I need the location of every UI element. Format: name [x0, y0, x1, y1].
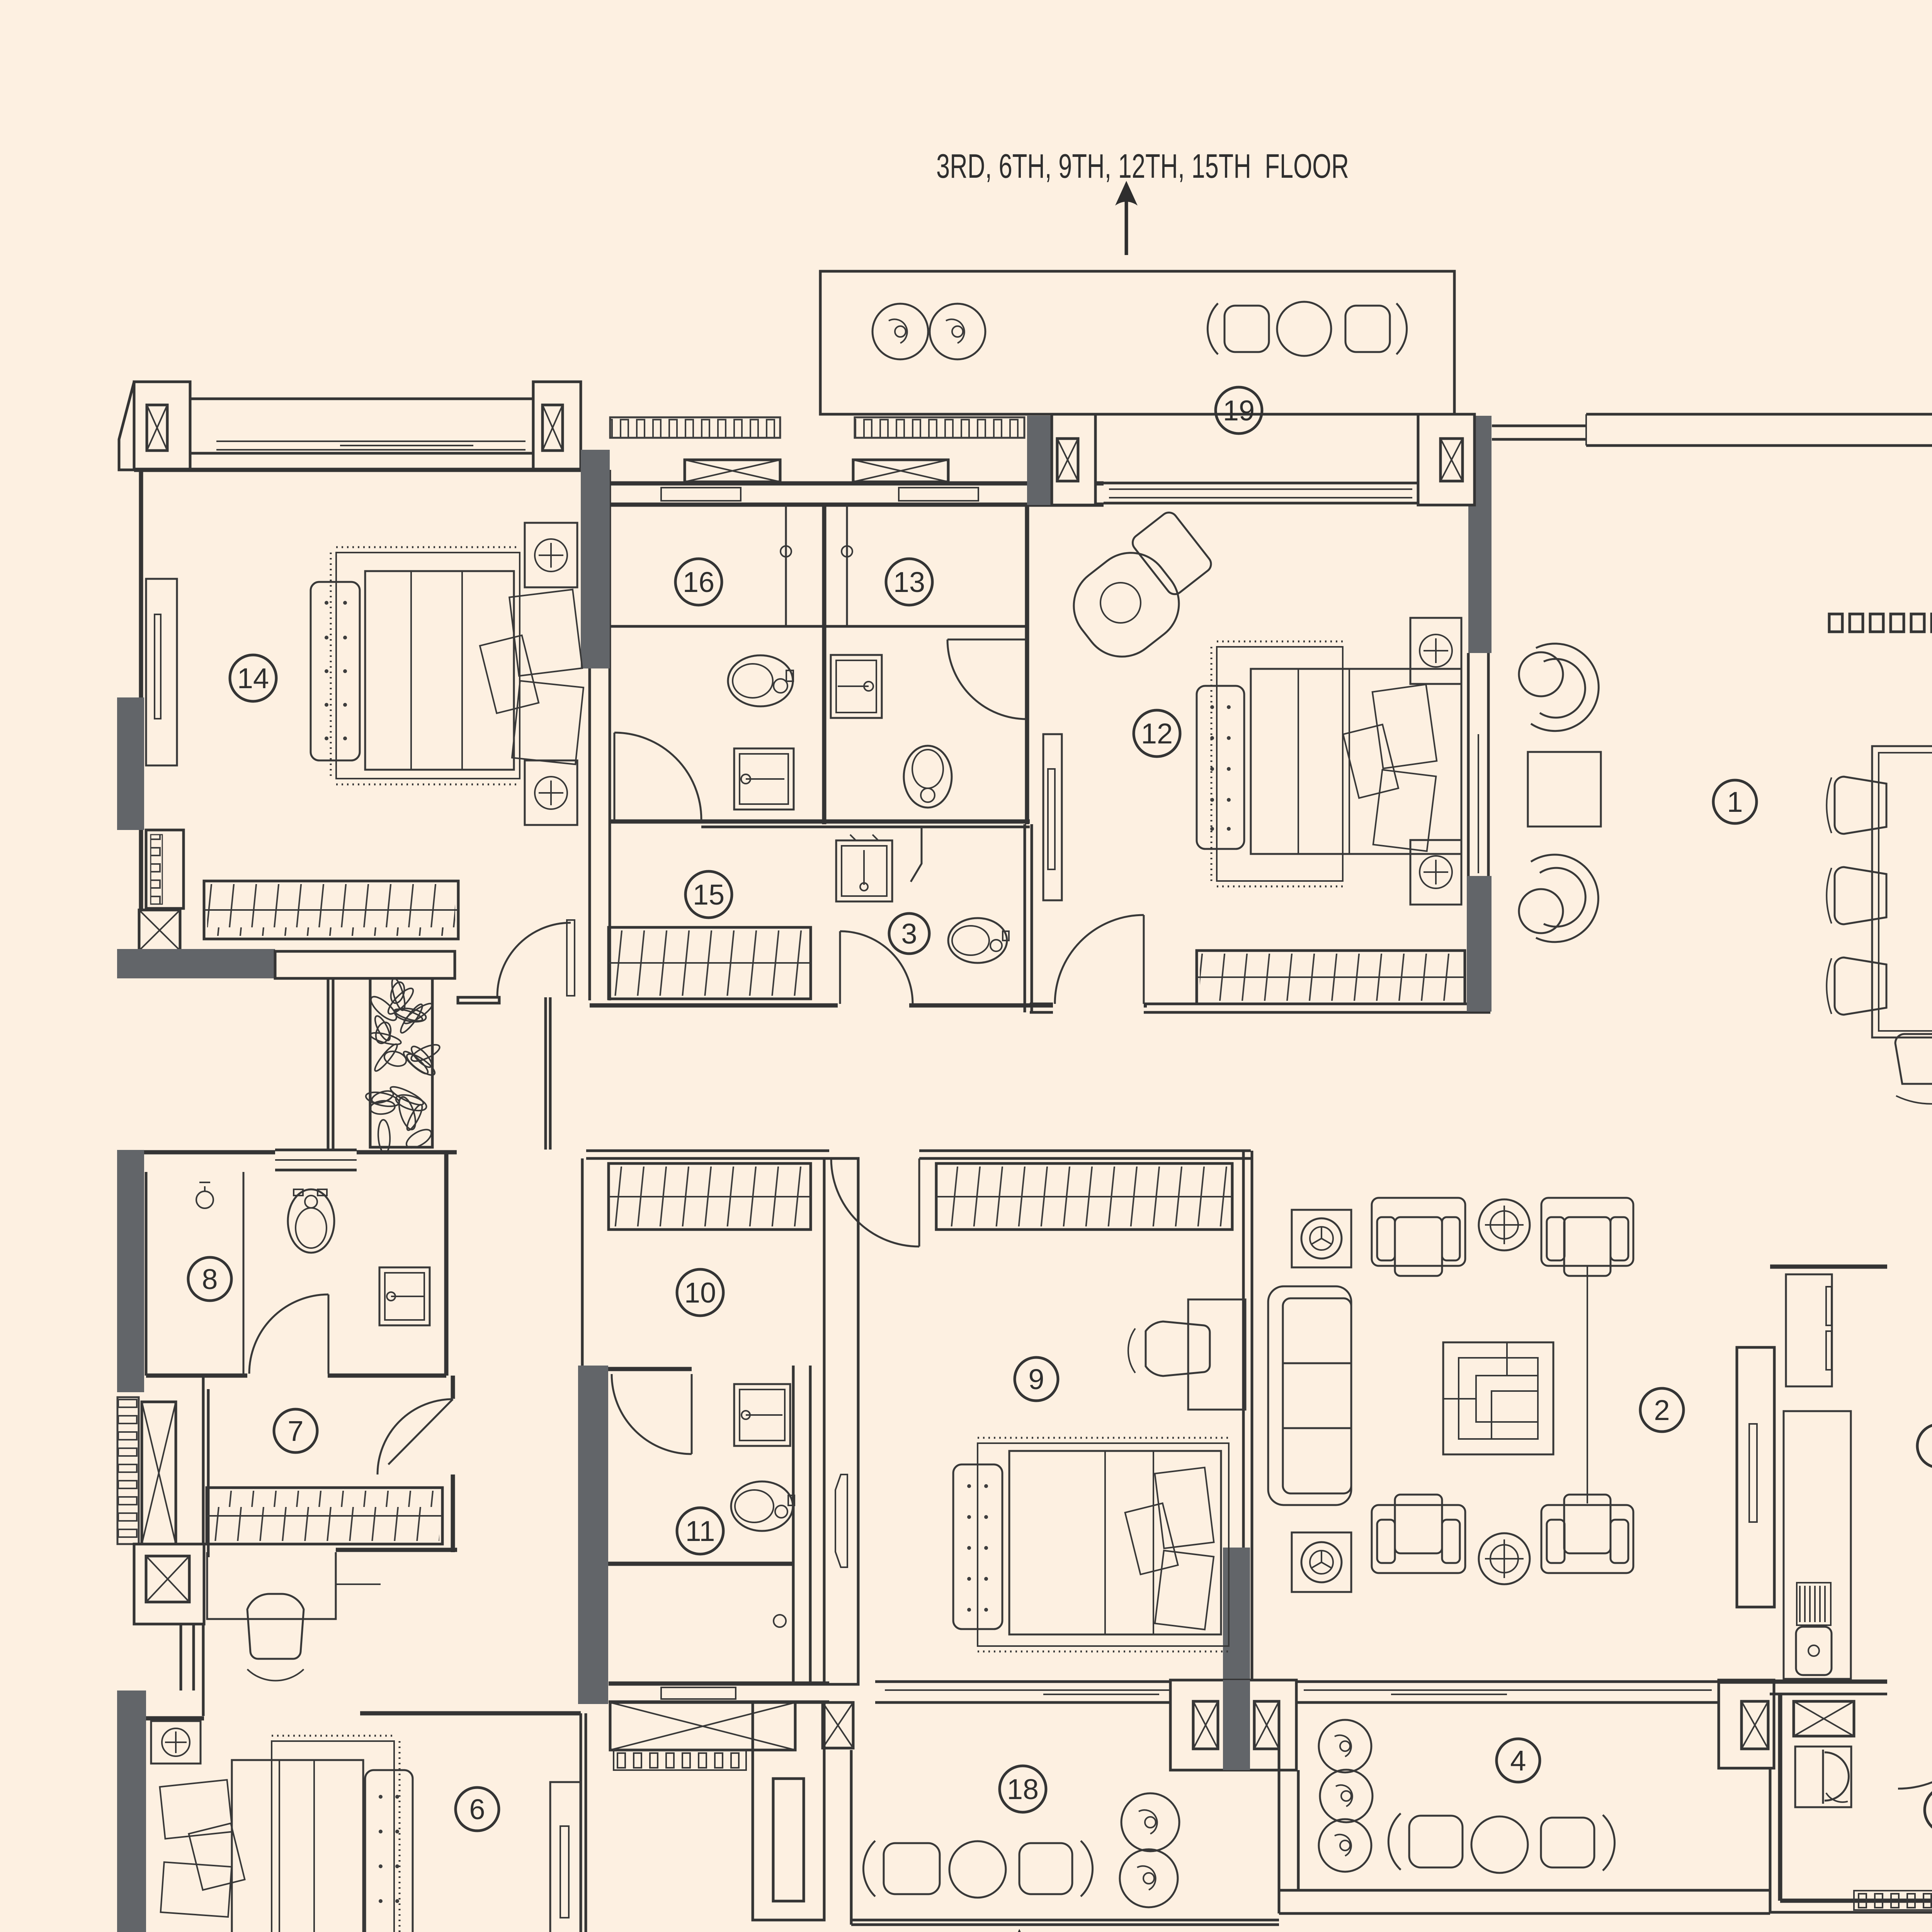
svg-text:12: 12 [1141, 718, 1173, 750]
svg-text:2: 2 [1654, 1394, 1670, 1426]
svg-text:18: 18 [1007, 1773, 1039, 1805]
svg-text:15: 15 [693, 879, 724, 911]
svg-text:11: 11 [685, 1515, 715, 1547]
svg-text:8: 8 [202, 1263, 218, 1295]
svg-text:3RD, 6TH, 9TH, 12TH, 15TH FLO: 3RD, 6TH, 9TH, 12TH, 15TH FLOOR [936, 147, 1349, 185]
svg-text:14: 14 [237, 662, 269, 694]
svg-text:13: 13 [893, 566, 925, 598]
svg-text:10: 10 [684, 1277, 716, 1309]
svg-text:3: 3 [901, 918, 917, 950]
svg-text:6: 6 [469, 1793, 485, 1825]
svg-text:9: 9 [1028, 1363, 1044, 1395]
svg-text:4: 4 [1510, 1745, 1526, 1777]
svg-text:16: 16 [683, 566, 714, 598]
svg-text:1: 1 [1727, 786, 1743, 818]
svg-text:19: 19 [1223, 395, 1255, 427]
svg-text:7: 7 [287, 1415, 303, 1447]
